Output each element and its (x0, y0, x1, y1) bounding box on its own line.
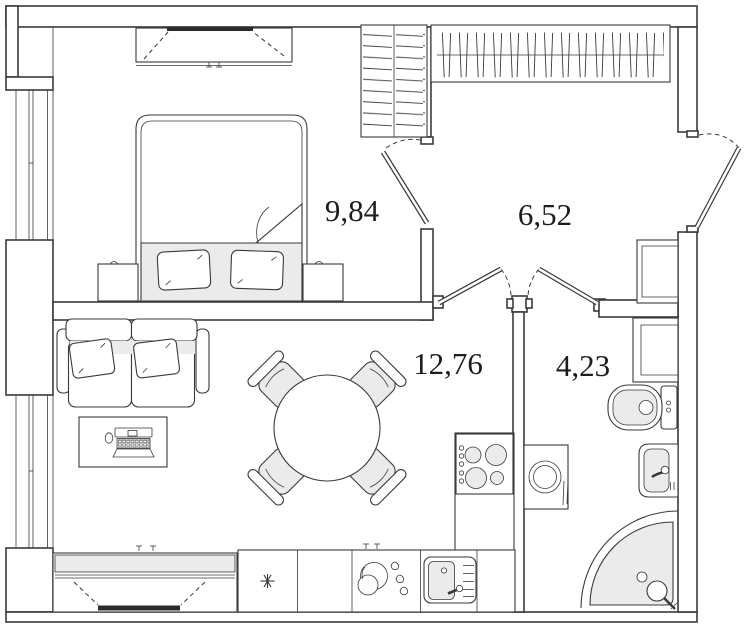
pillow (230, 250, 283, 290)
socket-marks (136, 546, 156, 551)
floor-plan: 9,84 6,52 12,76 4,23 (0, 0, 749, 632)
bathroom-door (528, 269, 597, 303)
sofa-pillow (133, 338, 180, 378)
kitchen-sink-icon (424, 557, 476, 603)
nightstand-right (303, 262, 343, 302)
shelf-wardrobe (361, 25, 427, 137)
round-table (274, 375, 380, 481)
desk (79, 417, 167, 467)
sofa (57, 319, 209, 407)
washbasin-icon (639, 444, 678, 497)
living-kitchen-area-label: 12,76 (413, 346, 483, 381)
duct-shaft-bathroom (633, 318, 678, 382)
sofa-pillow (69, 338, 115, 379)
duct-shaft-hallway (637, 240, 678, 303)
toilet-icon (608, 385, 677, 430)
pillow (157, 250, 211, 291)
dining-set (246, 349, 408, 507)
stove-icon (456, 434, 513, 494)
entrance-door (697, 134, 739, 227)
socket-marks (363, 544, 380, 549)
nightstand-left (98, 262, 138, 302)
corner-shower-icon (581, 511, 678, 609)
bedroom-area-label: 9,84 (325, 193, 380, 228)
window-bedroom (16, 90, 48, 240)
window-living (16, 395, 48, 548)
tv-stand-bedroom (136, 27, 292, 68)
living-room-door (439, 269, 511, 303)
bathroom-area-label: 4,23 (556, 348, 610, 383)
washing-machine-icon (524, 445, 568, 509)
bedroom-door (383, 139, 427, 223)
hallway-area-label: 6,52 (518, 197, 572, 232)
laptop-icon (113, 428, 154, 457)
hanger-wardrobe (431, 25, 670, 82)
floor-plan-page: 9,84 6,52 12,76 4,23 (0, 0, 749, 632)
socket-marks (206, 62, 222, 67)
mouse-icon (105, 433, 113, 443)
double-bed (136, 115, 307, 301)
tv-cabinet-living (53, 546, 237, 612)
